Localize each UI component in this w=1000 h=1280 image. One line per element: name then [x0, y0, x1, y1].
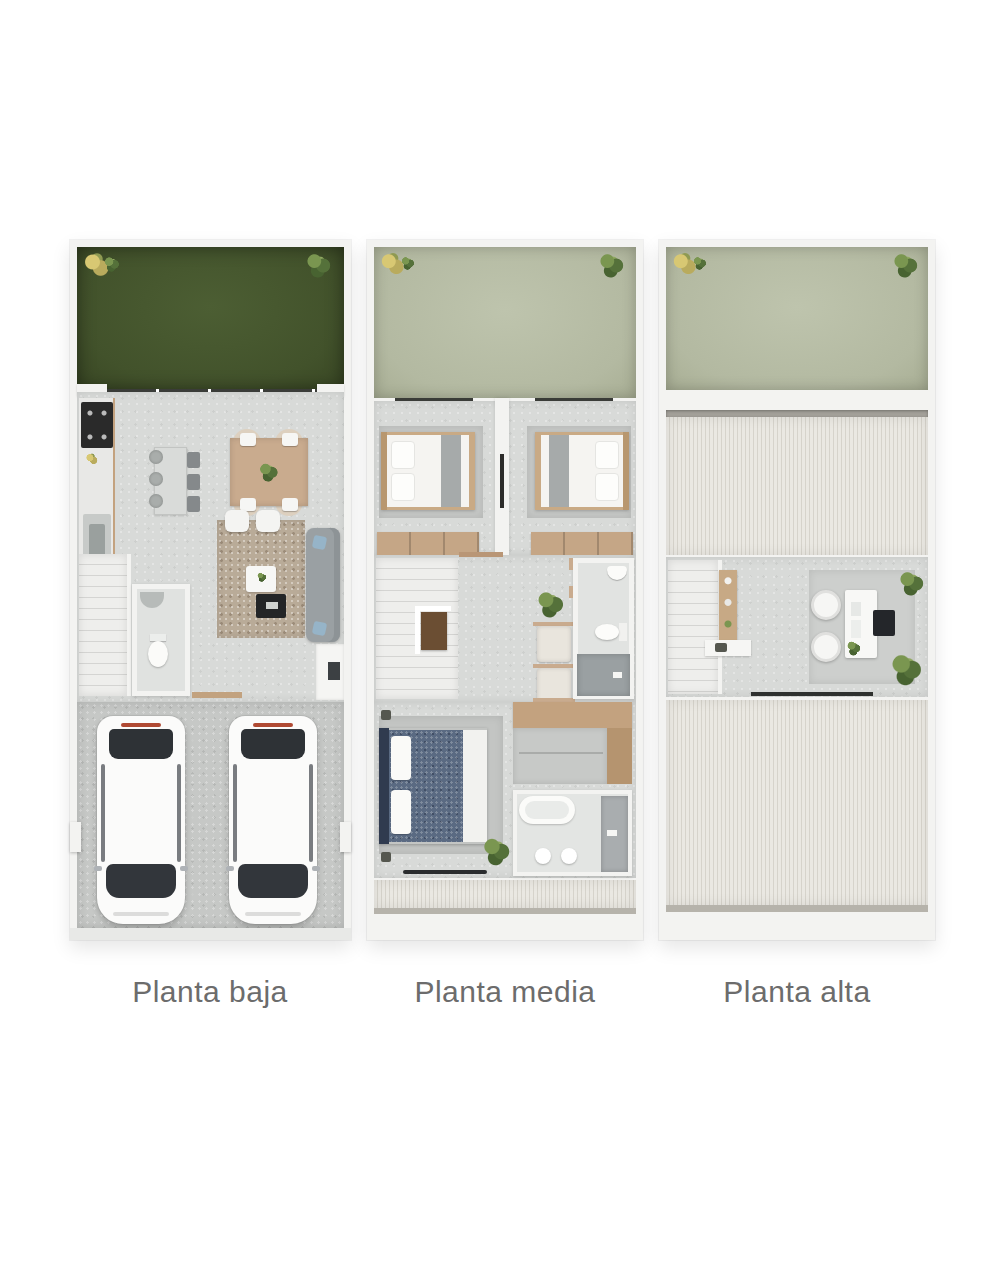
toilet-tank	[150, 634, 166, 641]
shelving-unit	[719, 570, 737, 642]
kitchen-sink-basin	[89, 524, 105, 558]
car-side-mirror	[226, 866, 234, 871]
car-side-mirror	[312, 866, 320, 871]
car-side-window	[233, 764, 237, 862]
side-table-item	[715, 643, 727, 652]
car-windshield	[238, 864, 308, 898]
floor-plan-planta-media	[367, 240, 643, 940]
stair-railing	[415, 606, 451, 611]
potted-plant	[899, 570, 925, 596]
terrace-shrub	[693, 256, 707, 270]
car-brake-light	[253, 723, 293, 727]
car-side-window	[101, 764, 105, 862]
roof-recess	[666, 410, 928, 417]
car-windshield	[106, 864, 176, 898]
armchair	[256, 510, 280, 532]
master-bed	[379, 728, 487, 844]
garden-shrub	[104, 256, 120, 272]
laundry-unit-door	[328, 662, 340, 680]
coffee-table-plant	[257, 572, 267, 582]
terrace-corner-plant	[599, 252, 625, 278]
bed-headboard	[623, 432, 629, 510]
bed-runner	[441, 435, 461, 507]
toilet-bowl	[148, 641, 168, 667]
roof-fascia	[659, 912, 935, 940]
bed-headboard	[379, 728, 389, 844]
staircase	[668, 560, 722, 694]
closet-counter	[513, 702, 632, 728]
gate-post	[70, 822, 81, 852]
car-rear-window	[109, 729, 173, 759]
side-table	[705, 640, 751, 656]
car-top-view	[229, 716, 317, 924]
door-threshold	[459, 552, 503, 557]
dining-chair	[240, 433, 256, 446]
foot-throw	[463, 730, 487, 842]
closet-rail	[519, 752, 603, 754]
desk-plant	[847, 640, 861, 656]
floor-plans-figure: Planta baja Planta media Planta alta	[0, 0, 1000, 1280]
soap-dish	[613, 672, 622, 678]
island-seat	[187, 452, 200, 468]
roof-ledge	[666, 905, 928, 912]
pillow	[595, 441, 619, 469]
car-side-window	[309, 764, 313, 862]
car-front-shadow	[245, 912, 301, 916]
desk-accessory	[851, 620, 861, 638]
table-centerpiece-plant	[259, 462, 279, 482]
pillow	[391, 790, 411, 834]
potted-plant	[483, 836, 511, 866]
nightstand	[381, 852, 391, 862]
caption-planta-media: Planta media	[414, 975, 595, 1009]
wardrobe	[531, 532, 633, 555]
balcony-deck	[374, 880, 636, 908]
car-side-mirror	[94, 866, 102, 871]
bar-stool	[149, 494, 163, 508]
monitor-mat	[873, 610, 895, 636]
armchair	[225, 510, 249, 532]
throw-pillow	[312, 621, 327, 636]
sidewalk-apron	[70, 928, 351, 940]
car-side-mirror	[180, 866, 188, 871]
car-front-shadow	[113, 912, 169, 916]
pergola-roof	[666, 417, 928, 555]
window-bench-line	[403, 870, 487, 874]
potted-plant	[891, 652, 923, 686]
island-seat	[187, 496, 200, 512]
terrace-corner-plant	[893, 252, 919, 278]
island-seat	[187, 474, 200, 490]
garden-corner-plant	[306, 252, 332, 278]
car-top-view	[97, 716, 185, 924]
desk-chair	[811, 590, 841, 620]
terrace-shrub	[401, 256, 415, 270]
nightstand	[381, 710, 391, 720]
gate-post	[340, 822, 351, 852]
staircase	[79, 554, 131, 696]
toilet-bowl	[595, 624, 619, 640]
desk-accessory	[851, 602, 861, 616]
counter-flowers	[85, 452, 99, 466]
soap-dish	[607, 830, 617, 836]
roof-terrace	[666, 247, 928, 390]
sink	[535, 848, 551, 864]
pillow	[391, 473, 415, 501]
door-jamb	[569, 586, 573, 598]
stair-railing	[415, 606, 420, 654]
bar-stool	[149, 450, 163, 464]
walk-in-closet	[513, 702, 632, 784]
floor-plan-planta-baja	[70, 240, 351, 940]
pillow	[391, 736, 411, 780]
lounge-chair	[537, 626, 571, 662]
car-rear-window	[241, 729, 305, 759]
stair-landing	[421, 612, 447, 650]
shower-floor	[577, 654, 630, 696]
door-threshold	[192, 692, 242, 698]
roof-terrace	[374, 247, 636, 398]
caption-planta-alta: Planta alta	[723, 975, 870, 1009]
bed	[381, 432, 475, 510]
potted-plant	[537, 590, 565, 618]
pillow	[595, 473, 619, 501]
sliding-door	[500, 454, 504, 508]
toilet-tank	[619, 623, 627, 641]
dining-chair	[282, 433, 298, 446]
closet-cabinet	[607, 728, 632, 784]
stove-cooktop	[81, 402, 113, 448]
bathtub-basin	[525, 801, 569, 819]
door-jamb	[569, 558, 573, 570]
pillow	[391, 441, 415, 469]
car-brake-light	[121, 723, 161, 727]
sink	[561, 848, 577, 864]
bar-stool	[149, 472, 163, 486]
window-strip	[751, 692, 873, 696]
bed-runner	[549, 435, 569, 507]
closet-floor	[513, 728, 607, 784]
floor-plan-planta-alta	[659, 240, 935, 940]
pergola-roof	[666, 700, 928, 905]
bed	[535, 432, 629, 510]
caption-planta-baja: Planta baja	[132, 975, 288, 1009]
balcony-fascia	[367, 914, 643, 940]
desk-chair	[811, 632, 841, 662]
throw-pillow	[312, 535, 327, 550]
car-side-window	[177, 764, 181, 862]
dining-chair	[282, 498, 298, 511]
tv-screen	[266, 602, 278, 609]
